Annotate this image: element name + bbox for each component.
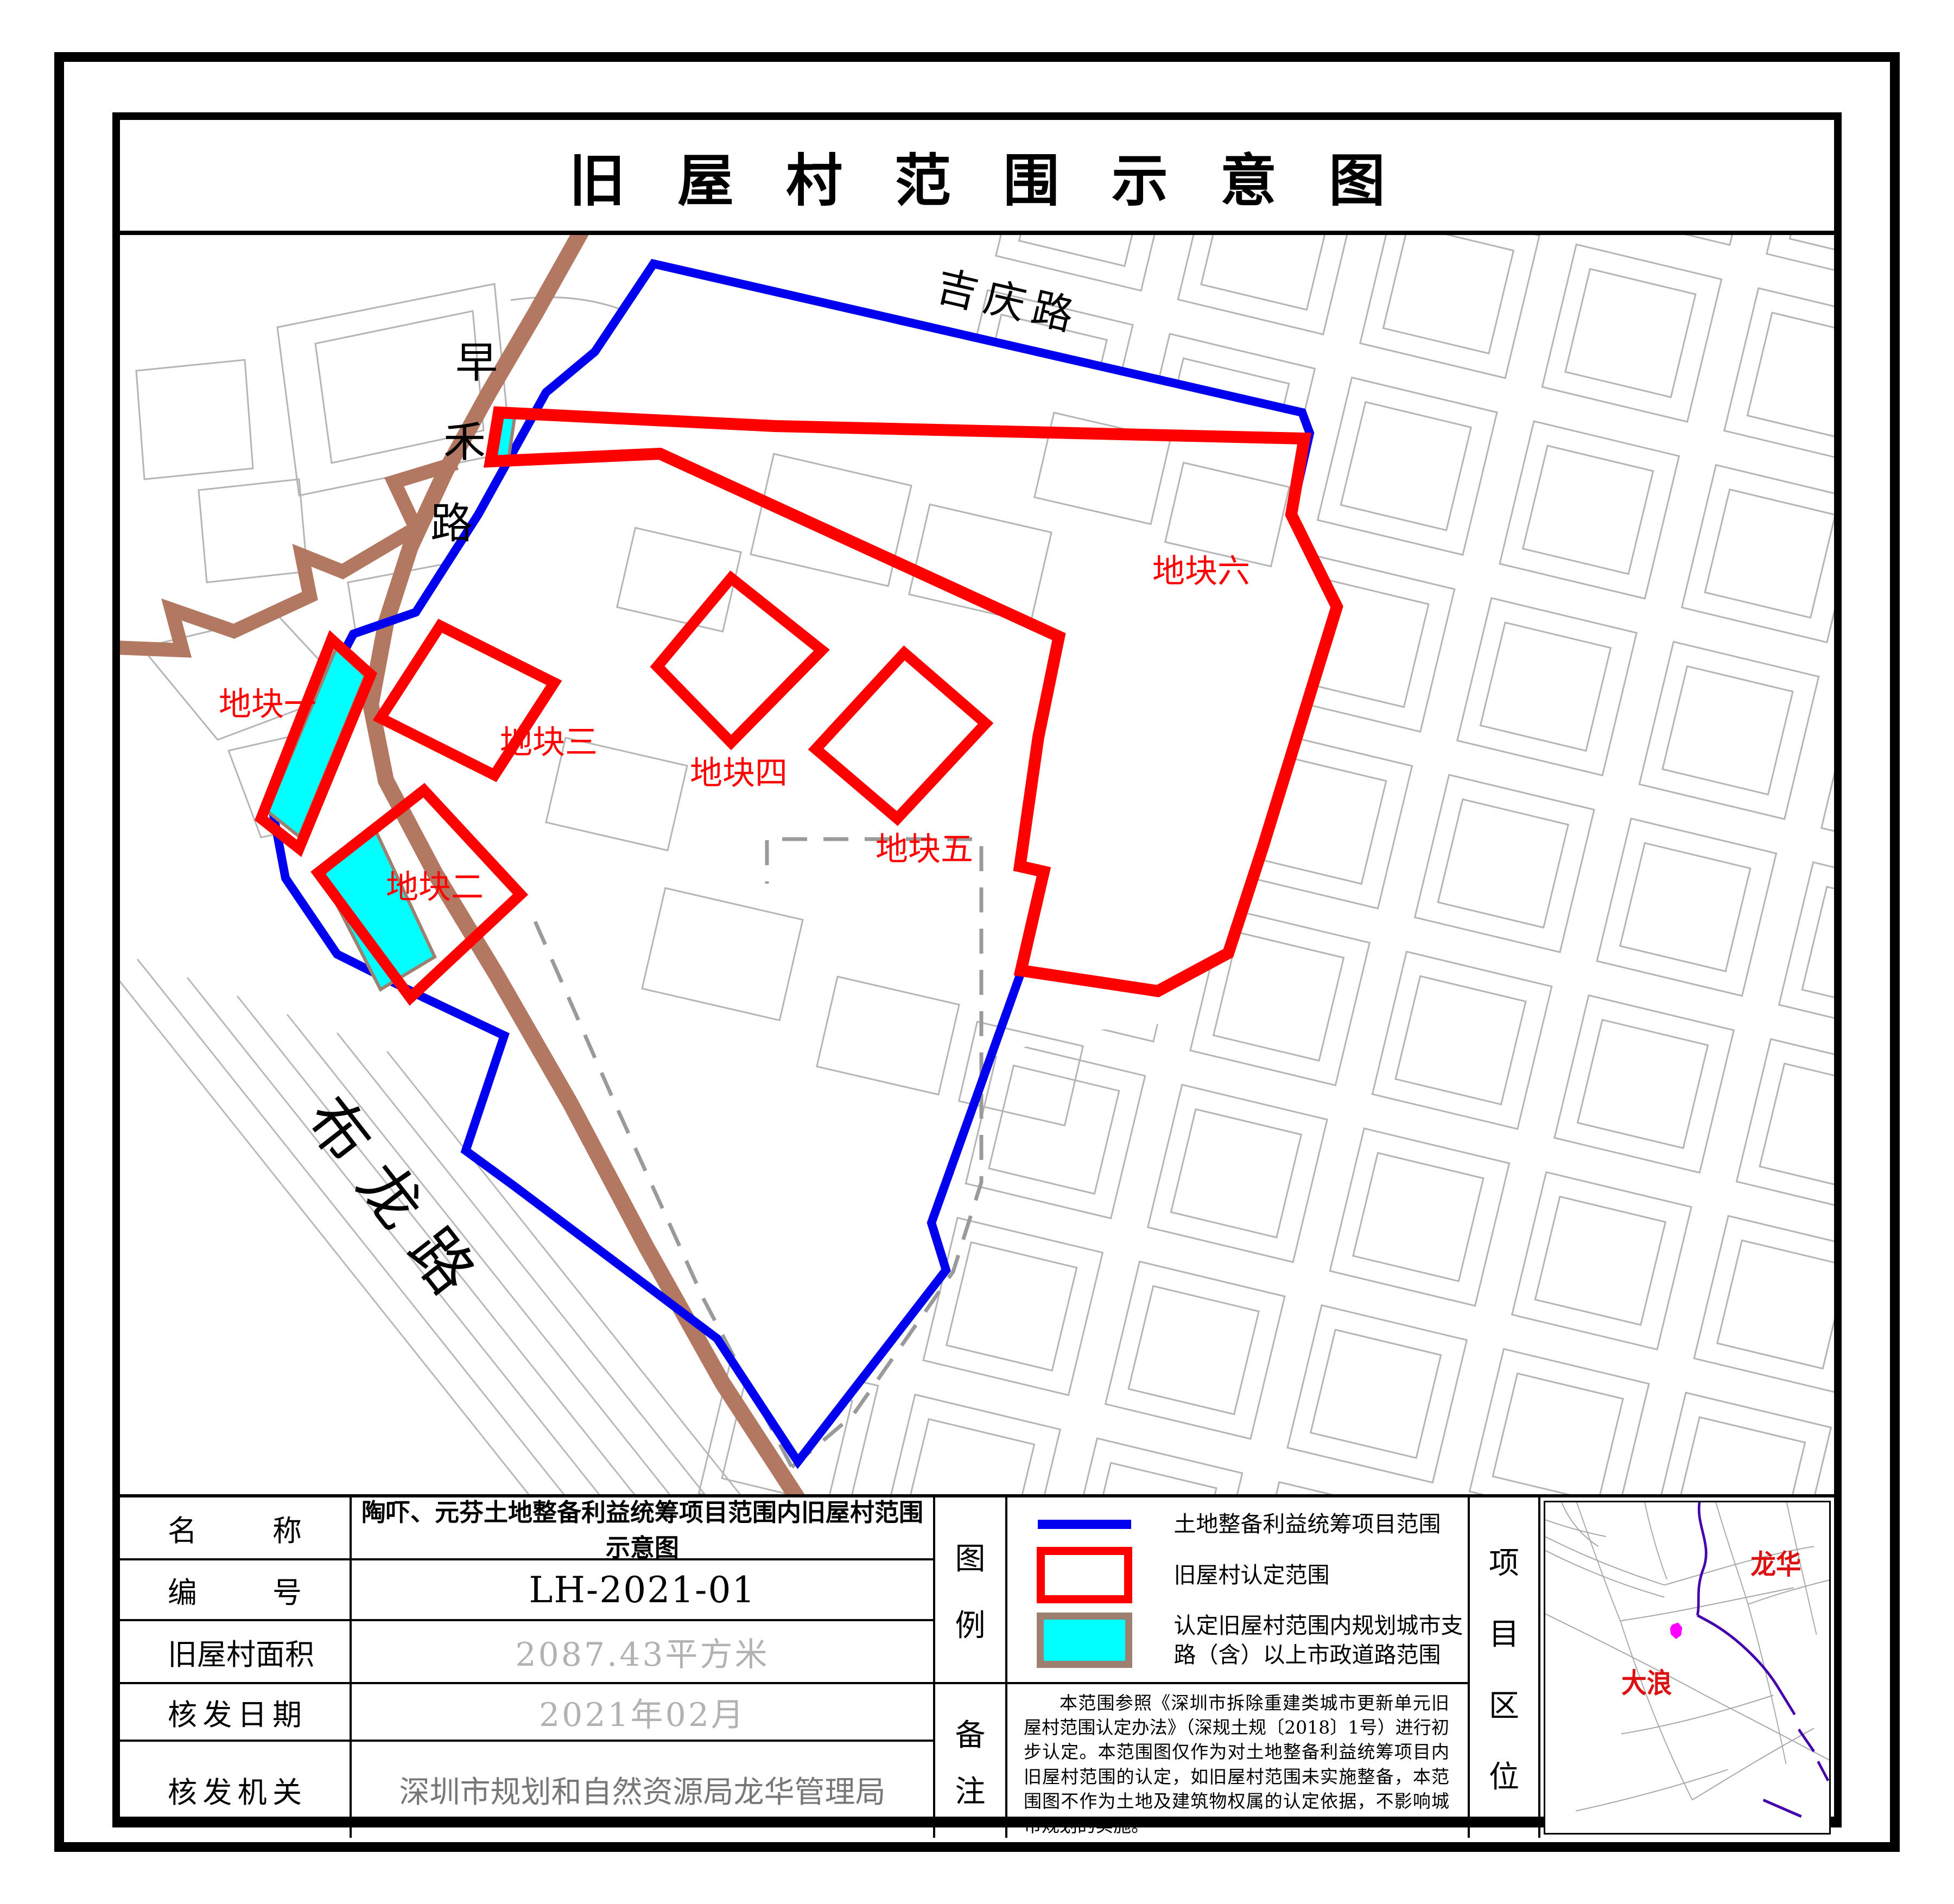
map: 吉庆路 早 禾 路 布龙路 地块一 地块二 地块三 地块四 地块五 地块六 xyxy=(120,235,1834,1494)
location-minimap: 龙华 大浪 xyxy=(1544,1501,1831,1835)
legend-section-label: 图例 xyxy=(955,1497,986,1682)
value-area: 2087.43平方米 xyxy=(515,1628,769,1675)
plot6-label: 地块六 xyxy=(1152,553,1250,591)
plot3-label: 地块三 xyxy=(500,723,598,761)
info-table: 名称 编号 旧屋村面积 核发日期 核发机关 陶吓、元芬土地整备利益统筹项目范围内… xyxy=(120,1497,1834,1838)
location-section-label: 项目区位 xyxy=(1489,1497,1519,1838)
legend-label: 土地整备利益统筹项目范围 xyxy=(1174,1509,1468,1539)
svg-text:禾: 禾 xyxy=(443,418,486,467)
legend: 土地整备利益统筹项目范围 旧屋村认定范围 认定旧屋村范围内规划城市支路（含）以上… xyxy=(1005,1497,1468,1682)
sheet-frame: 旧屋村范围示意图 xyxy=(112,112,1842,1827)
location-minimap-cell: 龙华 大浪 xyxy=(1538,1497,1834,1838)
legend-item-village-range: 旧屋村认定范围 xyxy=(1005,1547,1468,1603)
value-name: 陶吓、元芬土地整备利益统筹项目范围内旧屋村范围示意图 xyxy=(352,1497,933,1558)
minimap-label-dalang: 大浪 xyxy=(1621,1666,1672,1699)
plot2-label: 地块二 xyxy=(386,868,484,906)
minimap-label-longhua: 龙华 xyxy=(1750,1548,1801,1581)
remarks-text: 本范围参照《深圳市拆除重建类城市更新单元旧屋村范围认定办法》（深规土规〔2018… xyxy=(1005,1682,1468,1838)
page-title: 旧屋村范围示意图 xyxy=(517,135,1437,217)
value-serial: LH-2021-01 xyxy=(529,1569,756,1611)
plot5-label: 地块五 xyxy=(876,830,973,868)
svg-text:路: 路 xyxy=(430,499,473,548)
value-agency: 深圳市规划和自然资源局龙华管理局 xyxy=(399,1768,886,1812)
map-area: 吉庆路 早 禾 路 布龙路 地块一 地块二 地块三 地块四 地块五 地块六 xyxy=(120,231,1834,1497)
page: 旧屋村范围示意图 xyxy=(0,0,1954,1904)
red-outline-swatch xyxy=(1037,1547,1132,1603)
row-label-serial: 编号 xyxy=(120,1569,350,1611)
row-label-name: 名称 xyxy=(120,1507,350,1550)
remarks-section-label: 备注 xyxy=(955,1684,986,1838)
svg-text:早: 早 xyxy=(455,339,498,388)
plot1-label: 地块一 xyxy=(219,686,316,723)
minimap-svg: 龙华 大浪 xyxy=(1545,1502,1829,1833)
legend-item-municipal-road: 认定旧屋村范围内规划城市支路（含）以上市政道路范围 xyxy=(1005,1611,1468,1670)
legend-item-project-boundary: 土地整备利益统筹项目范围 xyxy=(1005,1509,1468,1539)
row-label-area: 旧屋村面积 xyxy=(120,1630,350,1673)
legend-label: 旧屋村认定范围 xyxy=(1174,1560,1468,1590)
cyan-fill-swatch xyxy=(1037,1613,1132,1668)
title-band: 旧屋村范围示意图 xyxy=(120,120,1834,231)
value-date: 2021年02月 xyxy=(539,1689,746,1736)
row-label-date: 核发日期 xyxy=(120,1691,350,1734)
plot4-label: 地块四 xyxy=(690,754,788,792)
legend-label: 认定旧屋村范围内规划城市支路（含）以上市政道路范围 xyxy=(1174,1611,1468,1670)
blue-line-swatch xyxy=(1038,1520,1131,1529)
row-label-agency: 核发机关 xyxy=(120,1768,350,1811)
